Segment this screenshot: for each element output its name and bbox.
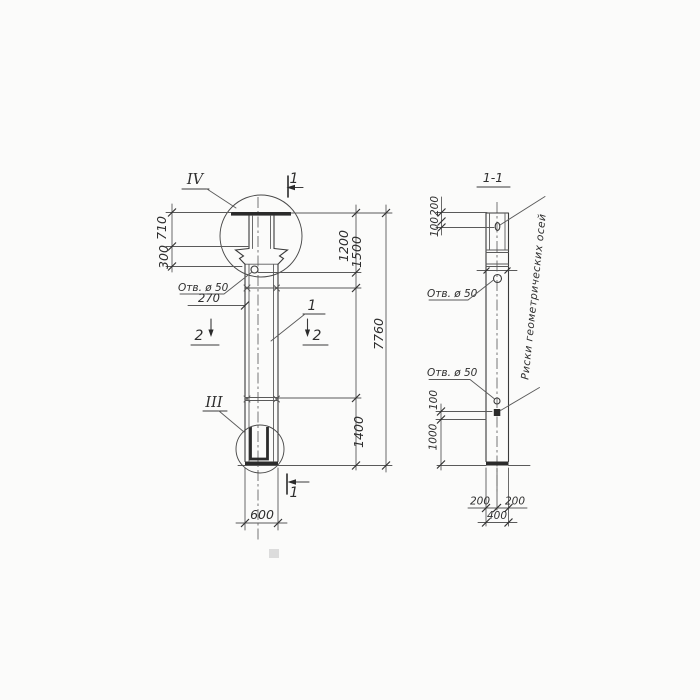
axes-note: Риски геометрических осей (519, 213, 548, 380)
section-bottom-dims: 200 200 400 (468, 468, 527, 527)
detail-iv-leader (207, 189, 236, 208)
dim-1500: 1500 (349, 236, 364, 268)
section-top-dims: 200 100 (429, 196, 494, 237)
bottom-band (245, 462, 278, 466)
dim-bottom-400: 400 (487, 510, 507, 522)
dim-mid-1000: 1000 (428, 423, 440, 450)
dim-top-100: 100 (429, 217, 441, 237)
detail-label-iv: IV (186, 172, 205, 188)
section-mark-1-top-label: 1 (290, 171, 299, 187)
section-mark-1-bottom-label: 1 (290, 485, 299, 501)
detail-label-iii: III (204, 395, 222, 411)
cap-plate (231, 212, 291, 216)
dim-bottom-200-left: 200 (470, 496, 490, 508)
bottom-core (251, 427, 268, 459)
technical-drawing-sheet: IV III 1 1 1 2 (0, 0, 700, 700)
dim-600: 600 (250, 507, 274, 522)
section-mark-1-bottom: 1 (287, 474, 309, 501)
section-mark-2-right-label: 2 (313, 328, 322, 344)
flare-barb-right (274, 249, 288, 265)
part-label-leader (271, 314, 305, 341)
dim-mid-100: 100 (428, 390, 440, 410)
dim-710: 710 (154, 216, 169, 240)
detail-circle-top (220, 195, 302, 277)
section-mark-1-top: 1 (287, 171, 304, 197)
scan-artifact (269, 549, 279, 558)
front-bottom-dim: 600 (236, 468, 287, 530)
section-hole-note-lower: Отв. ø 50 (427, 367, 478, 379)
dim-bottom-200-right: 200 (505, 496, 525, 508)
section-mark-2-left-label: 2 (195, 328, 204, 344)
neck-inner-walls (253, 216, 271, 249)
dim-top-200: 200 (429, 196, 441, 216)
dim-7760: 7760 (371, 318, 386, 350)
part-label: 1 (308, 298, 317, 314)
head-riska-hole (495, 223, 500, 231)
shaft-inner-walls (249, 265, 274, 462)
section-mark-2-right: 2 (303, 319, 328, 345)
lower-riska-mark (494, 409, 501, 416)
axes-note-leader-bottom (501, 388, 540, 411)
section-lower-dims: 100 1000 (428, 390, 493, 470)
flare-barb-left (236, 249, 250, 265)
section-view: 1-1 200 100 Отв. ø 50 (427, 170, 549, 527)
section-bottom-band (486, 462, 509, 466)
section-mark-2-left: 2 (191, 319, 219, 345)
section-hole (494, 275, 502, 283)
dim-1400: 1400 (351, 416, 366, 448)
front-view: IV III 1 1 1 2 (154, 171, 392, 540)
dim-300: 300 (156, 245, 171, 269)
detail-iii-leader (219, 411, 244, 432)
drawing-canvas: IV III 1 1 1 2 (0, 0, 700, 700)
dim-270: 270 (198, 291, 220, 305)
section-title: 1-1 (483, 170, 503, 185)
